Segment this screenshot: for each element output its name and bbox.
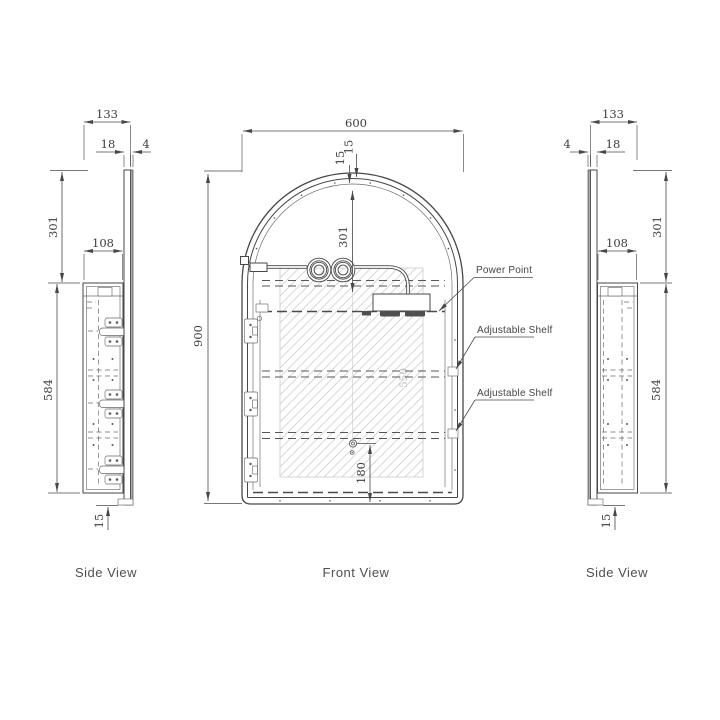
dim-value: 900	[191, 325, 205, 347]
mirror-cabinet-drawing: 133 18 4 301 108 584	[0, 0, 720, 720]
callout-adjustable-shelf-2: Adjustable Shelf	[456, 388, 552, 431]
left-mirror-glass-profile	[131, 170, 134, 505]
dim-value: 108	[606, 236, 628, 250]
left-dim-door-glass: 18 4	[96, 137, 151, 167]
dim-value: 108	[92, 236, 114, 250]
power-socket-icon	[380, 311, 400, 317]
power-socket-icon	[405, 311, 425, 317]
callout-label: Power Point	[476, 265, 532, 276]
dim-value: 180	[354, 462, 368, 484]
front-view: 550	[191, 116, 552, 580]
right-side-view: 133 4 18 301 108 584	[563, 107, 672, 580]
left-side-view: 133 18 4 301 108 584	[41, 107, 151, 580]
technical-drawing-page: 133 18 4 301 108 584	[0, 0, 720, 720]
callout-label: Adjustable Shelf	[477, 325, 552, 336]
right-top-rail	[608, 288, 622, 297]
callout-adjustable-shelf-1: Adjustable Shelf	[456, 325, 552, 369]
left-door-bottom-foot	[118, 499, 133, 505]
dim-value: 301	[336, 226, 350, 248]
dim-value: 4	[142, 137, 149, 151]
right-dim-bottom-gap: 15	[599, 506, 625, 531]
left-view-title: Side View	[75, 565, 137, 580]
hinge-icon	[245, 458, 258, 482]
callout-label: Adjustable Shelf	[477, 388, 552, 399]
cord-plug-icon	[250, 263, 267, 272]
dim-value: 15	[599, 514, 613, 529]
front-view-title: Front View	[323, 565, 390, 580]
right-view-title: Side View	[586, 565, 648, 580]
right-dim-door-glass: 4 18	[563, 137, 625, 167]
right-mirror-door-profile	[591, 170, 598, 505]
dim-value: 584	[41, 379, 55, 401]
power-point-box	[373, 294, 430, 311]
door-catch-icon	[256, 304, 268, 312]
left-dim-top-height: 301	[46, 171, 88, 283]
dim-value: 18	[606, 137, 621, 151]
cord-plug-cap-icon	[241, 257, 249, 265]
dim-value: 600	[345, 116, 367, 130]
dim-value: 133	[602, 107, 624, 121]
dim-value: 133	[96, 107, 118, 121]
right-dim-cabinet-height: 584	[640, 283, 672, 493]
right-door-bottom-foot	[588, 499, 603, 505]
front-dim-total-height: 900	[191, 171, 242, 504]
left-mirror-door-profile	[124, 170, 131, 505]
left-dim-bottom-gap: 15	[92, 506, 118, 531]
dim-value: 15	[342, 140, 356, 155]
right-dim-cabinet-depth: 108	[598, 236, 637, 280]
dim-value: 301	[46, 216, 60, 238]
right-mirror-glass-profile	[588, 170, 591, 505]
power-socket-icon	[362, 311, 371, 316]
hinge-icon	[245, 392, 258, 416]
hinge-icon	[245, 319, 258, 343]
dim-value: 4	[563, 137, 570, 151]
dim-value: 18	[101, 137, 116, 151]
right-dim-top-height: 301	[633, 171, 672, 283]
dim-value: 301	[650, 216, 664, 238]
left-top-rail	[98, 288, 112, 297]
left-dim-cabinet-height: 584	[41, 283, 80, 493]
dim-value: 584	[649, 379, 663, 401]
left-dim-cabinet-depth: 108	[84, 236, 123, 280]
dim-value: 15	[92, 514, 106, 529]
